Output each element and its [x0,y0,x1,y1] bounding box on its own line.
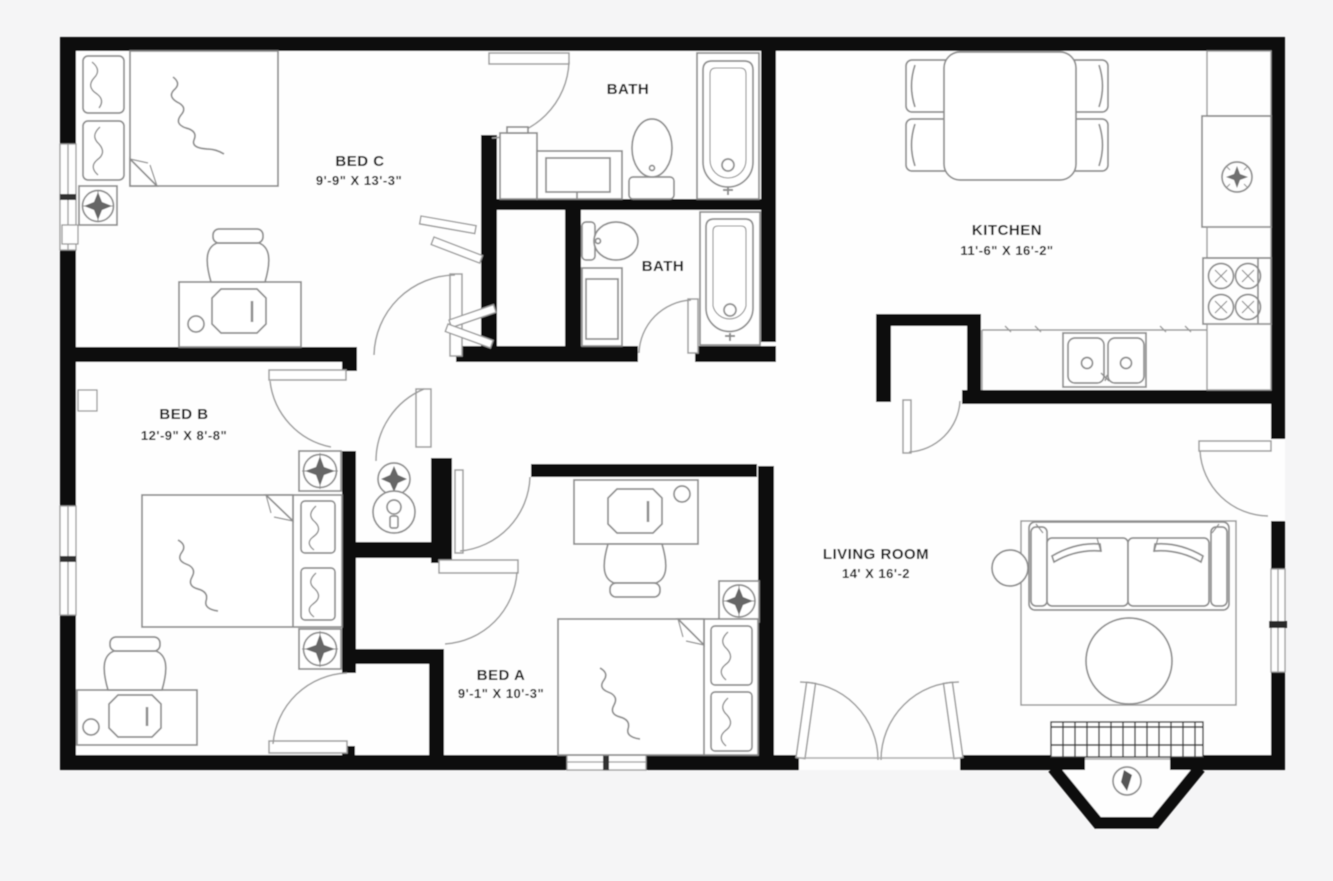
svg-text:BATH: BATH [642,258,685,275]
svg-text:BED A: BED A [477,667,526,684]
svg-text:9'-9" X 13'-3": 9'-9" X 13'-3" [316,173,402,188]
svg-text:11'-6" X 16'-2": 11'-6" X 16'-2" [960,243,1053,258]
svg-text:14' X 16'-2: 14' X 16'-2 [842,566,910,581]
svg-text:BATH: BATH [607,81,650,98]
svg-text:LIVING ROOM: LIVING ROOM [823,546,929,563]
svg-text:KITCHEN: KITCHEN [972,222,1042,239]
svg-text:BED C: BED C [335,153,384,170]
svg-text:12'-9" X 8'-8": 12'-9" X 8'-8" [141,428,227,443]
svg-text:BED B: BED B [159,406,208,423]
svg-text:9'-1" X 10'-3": 9'-1" X 10'-3" [458,686,544,701]
